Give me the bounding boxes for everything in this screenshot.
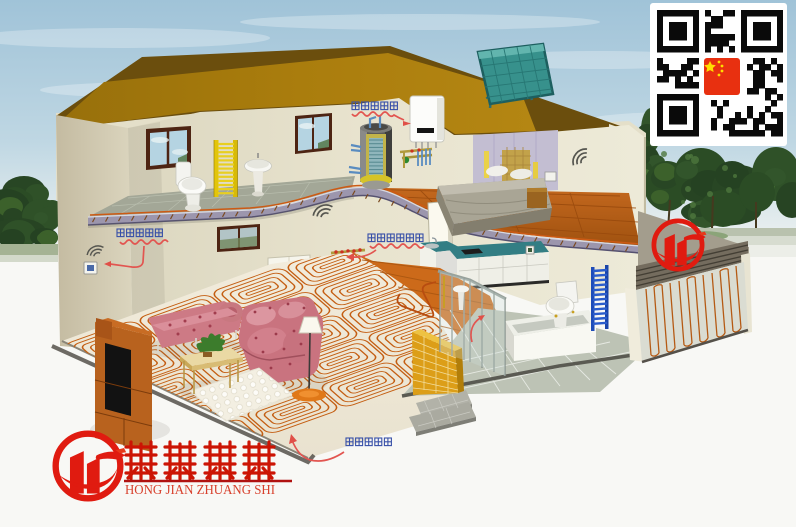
- svg-text:HONG JIAN ZHUANG SHI: HONG JIAN ZHUANG SHI: [125, 482, 275, 497]
